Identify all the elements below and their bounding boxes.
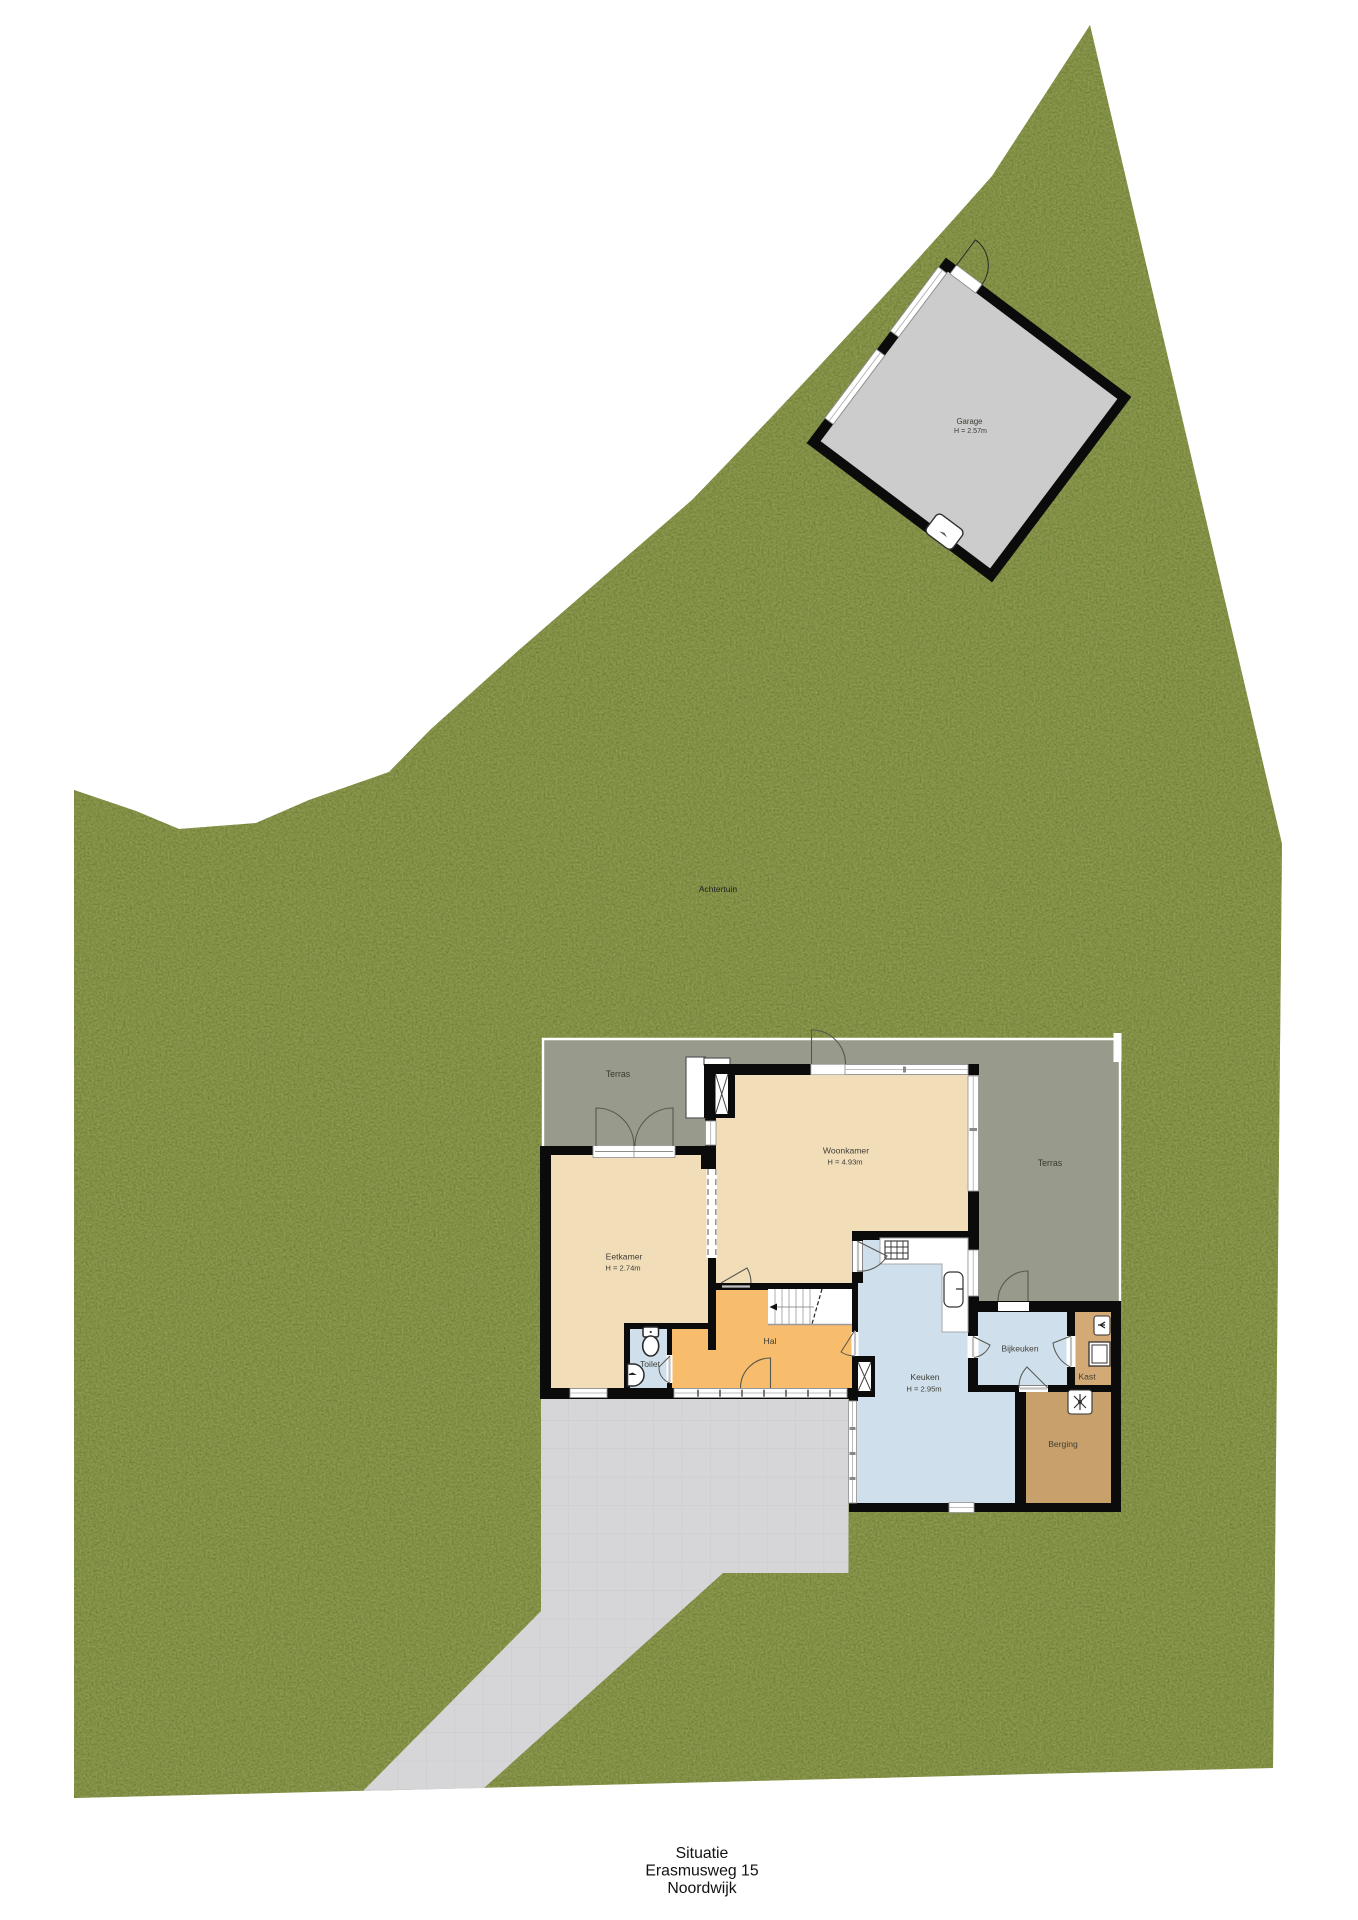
svg-text:H = 2.74m: H = 2.74m [605, 1264, 640, 1273]
svg-text:H = 2.57m: H = 2.57m [954, 427, 987, 435]
svg-text:Eetkamer: Eetkamer [606, 1252, 643, 1262]
svg-text:Berging: Berging [1048, 1439, 1078, 1449]
svg-text:Woonkamer: Woonkamer [823, 1146, 869, 1156]
svg-text:Toilet: Toilet [640, 1359, 661, 1369]
svg-text:Noordwijk: Noordwijk [667, 1880, 736, 1897]
svg-text:Situatie: Situatie [676, 1845, 729, 1862]
svg-text:Achtertuin: Achtertuin [699, 884, 738, 894]
svg-text:Erasmusweg 15: Erasmusweg 15 [645, 1863, 758, 1880]
svg-text:Garage: Garage [956, 417, 982, 426]
svg-text:Terras: Terras [1038, 1158, 1063, 1168]
svg-text:Keuken: Keuken [910, 1372, 939, 1382]
svg-text:Hal: Hal [764, 1336, 777, 1346]
svg-text:Terras: Terras [606, 1069, 631, 1079]
svg-text:Kast: Kast [1078, 1372, 1096, 1382]
svg-text:H = 2.95m: H = 2.95m [906, 1385, 941, 1394]
svg-text:H = 4.93m: H = 4.93m [827, 1158, 862, 1167]
svg-text:Bijkeuken: Bijkeuken [1001, 1344, 1038, 1354]
